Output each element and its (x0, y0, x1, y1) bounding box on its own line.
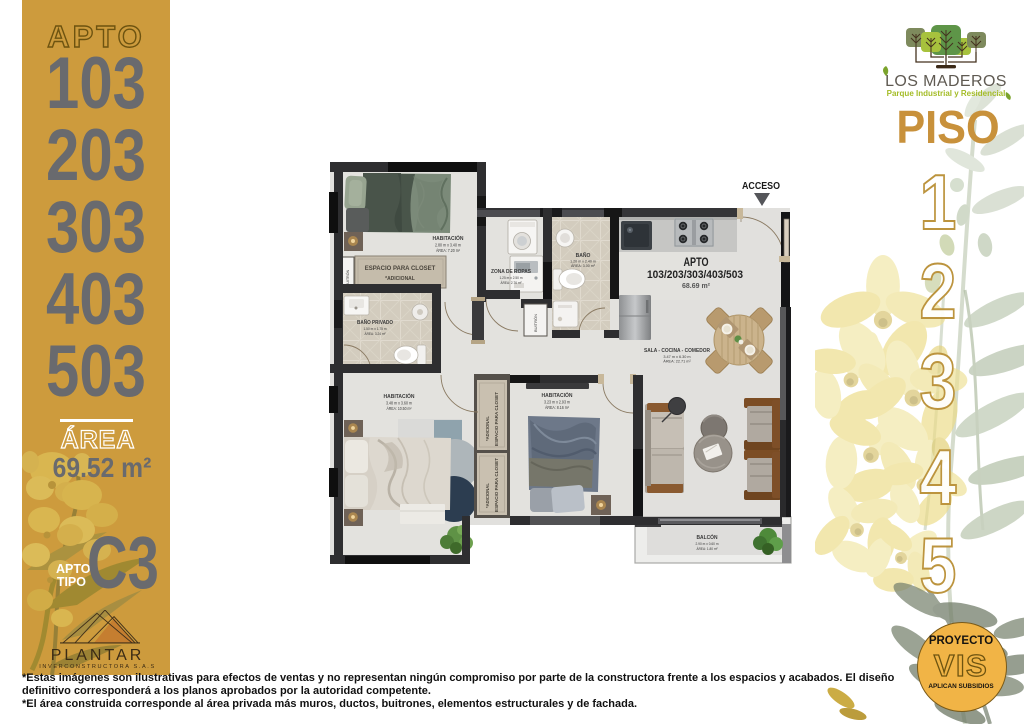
svg-text:3.48 m x 3.60 m: 3.48 m x 3.60 m (386, 401, 412, 406)
svg-text:HABITACIÓN: HABITACIÓN (433, 234, 464, 242)
svg-text:ÁREA: 7.20 m²: ÁREA: 7.20 m² (436, 248, 461, 253)
svg-text:*ADICIONAL: *ADICIONAL (485, 483, 490, 508)
svg-text:ÁREA: 1.80 m²: ÁREA: 1.80 m² (697, 547, 719, 551)
svg-text:*ADICIONAL: *ADICIONAL (385, 276, 415, 282)
svg-text:BAÑO: BAÑO (576, 252, 591, 259)
svg-text:ZONA DE ROPAS: ZONA DE ROPAS (491, 269, 532, 275)
svg-text:BUITRÓN: BUITRÓN (345, 269, 350, 286)
svg-text:ÁREA: 10.50 m²: ÁREA: 10.50 m² (387, 406, 412, 411)
svg-text:ESPACIO PARA CLOSET: ESPACIO PARA CLOSET (494, 458, 499, 512)
svg-text:1.20 m x 2.40 m: 1.20 m x 2.40 m (570, 260, 596, 264)
svg-text:ÁREA: 3.00 m²: ÁREA: 3.00 m² (571, 264, 596, 268)
svg-text:ESPACIO PARA CLOSET: ESPACIO PARA CLOSET (365, 266, 436, 272)
svg-text:*ADICIONAL: *ADICIONAL (485, 416, 490, 441)
svg-text:ACCESO: ACCESO (742, 180, 780, 192)
svg-text:BAÑO PRIVADO: BAÑO PRIVADO (357, 319, 393, 326)
svg-text:APTO: APTO (684, 255, 709, 269)
svg-text:103/203/303/403/503: 103/203/303/403/503 (647, 269, 743, 281)
svg-text:68.69 m²: 68.69 m² (682, 281, 710, 290)
svg-text:ÁREA: 22.71 m²: ÁREA: 22.71 m² (663, 360, 691, 364)
svg-text:ÁREA: 3.24 m²: ÁREA: 3.24 m² (365, 332, 387, 336)
svg-text:ÁREA: 8.16 m²: ÁREA: 8.16 m² (545, 405, 570, 410)
svg-text:3.23 m x 2.93 m: 3.23 m x 2.93 m (544, 400, 570, 405)
svg-text:SALA - COCINA - COMEDOR: SALA - COCINA - COMEDOR (644, 348, 710, 354)
svg-text:HABITACIÓN: HABITACIÓN (384, 392, 415, 400)
svg-text:3.47 m x 6.30 m: 3.47 m x 6.30 m (663, 355, 690, 359)
svg-text:ÁREA: 2.76 m²: ÁREA: 2.76 m² (501, 281, 523, 285)
svg-text:HABITACIÓN: HABITACIÓN (542, 391, 573, 399)
svg-text:BUITRÓN: BUITRÓN (533, 314, 538, 332)
svg-text:2.80 m x 3.40 m: 2.80 m x 3.40 m (435, 243, 461, 248)
svg-text:ESPACIO PARA CLOSET: ESPACIO PARA CLOSET (494, 392, 499, 446)
svg-text:BALCÓN: BALCÓN (697, 533, 718, 541)
svg-text:1.50 m x 1.75 m: 1.50 m x 1.75 m (364, 327, 387, 331)
svg-text:2.90 m x 0.60 m: 2.90 m x 0.60 m (696, 542, 719, 546)
svg-text:1.25 m x 2.50 m: 1.25 m x 2.50 m (500, 276, 523, 280)
